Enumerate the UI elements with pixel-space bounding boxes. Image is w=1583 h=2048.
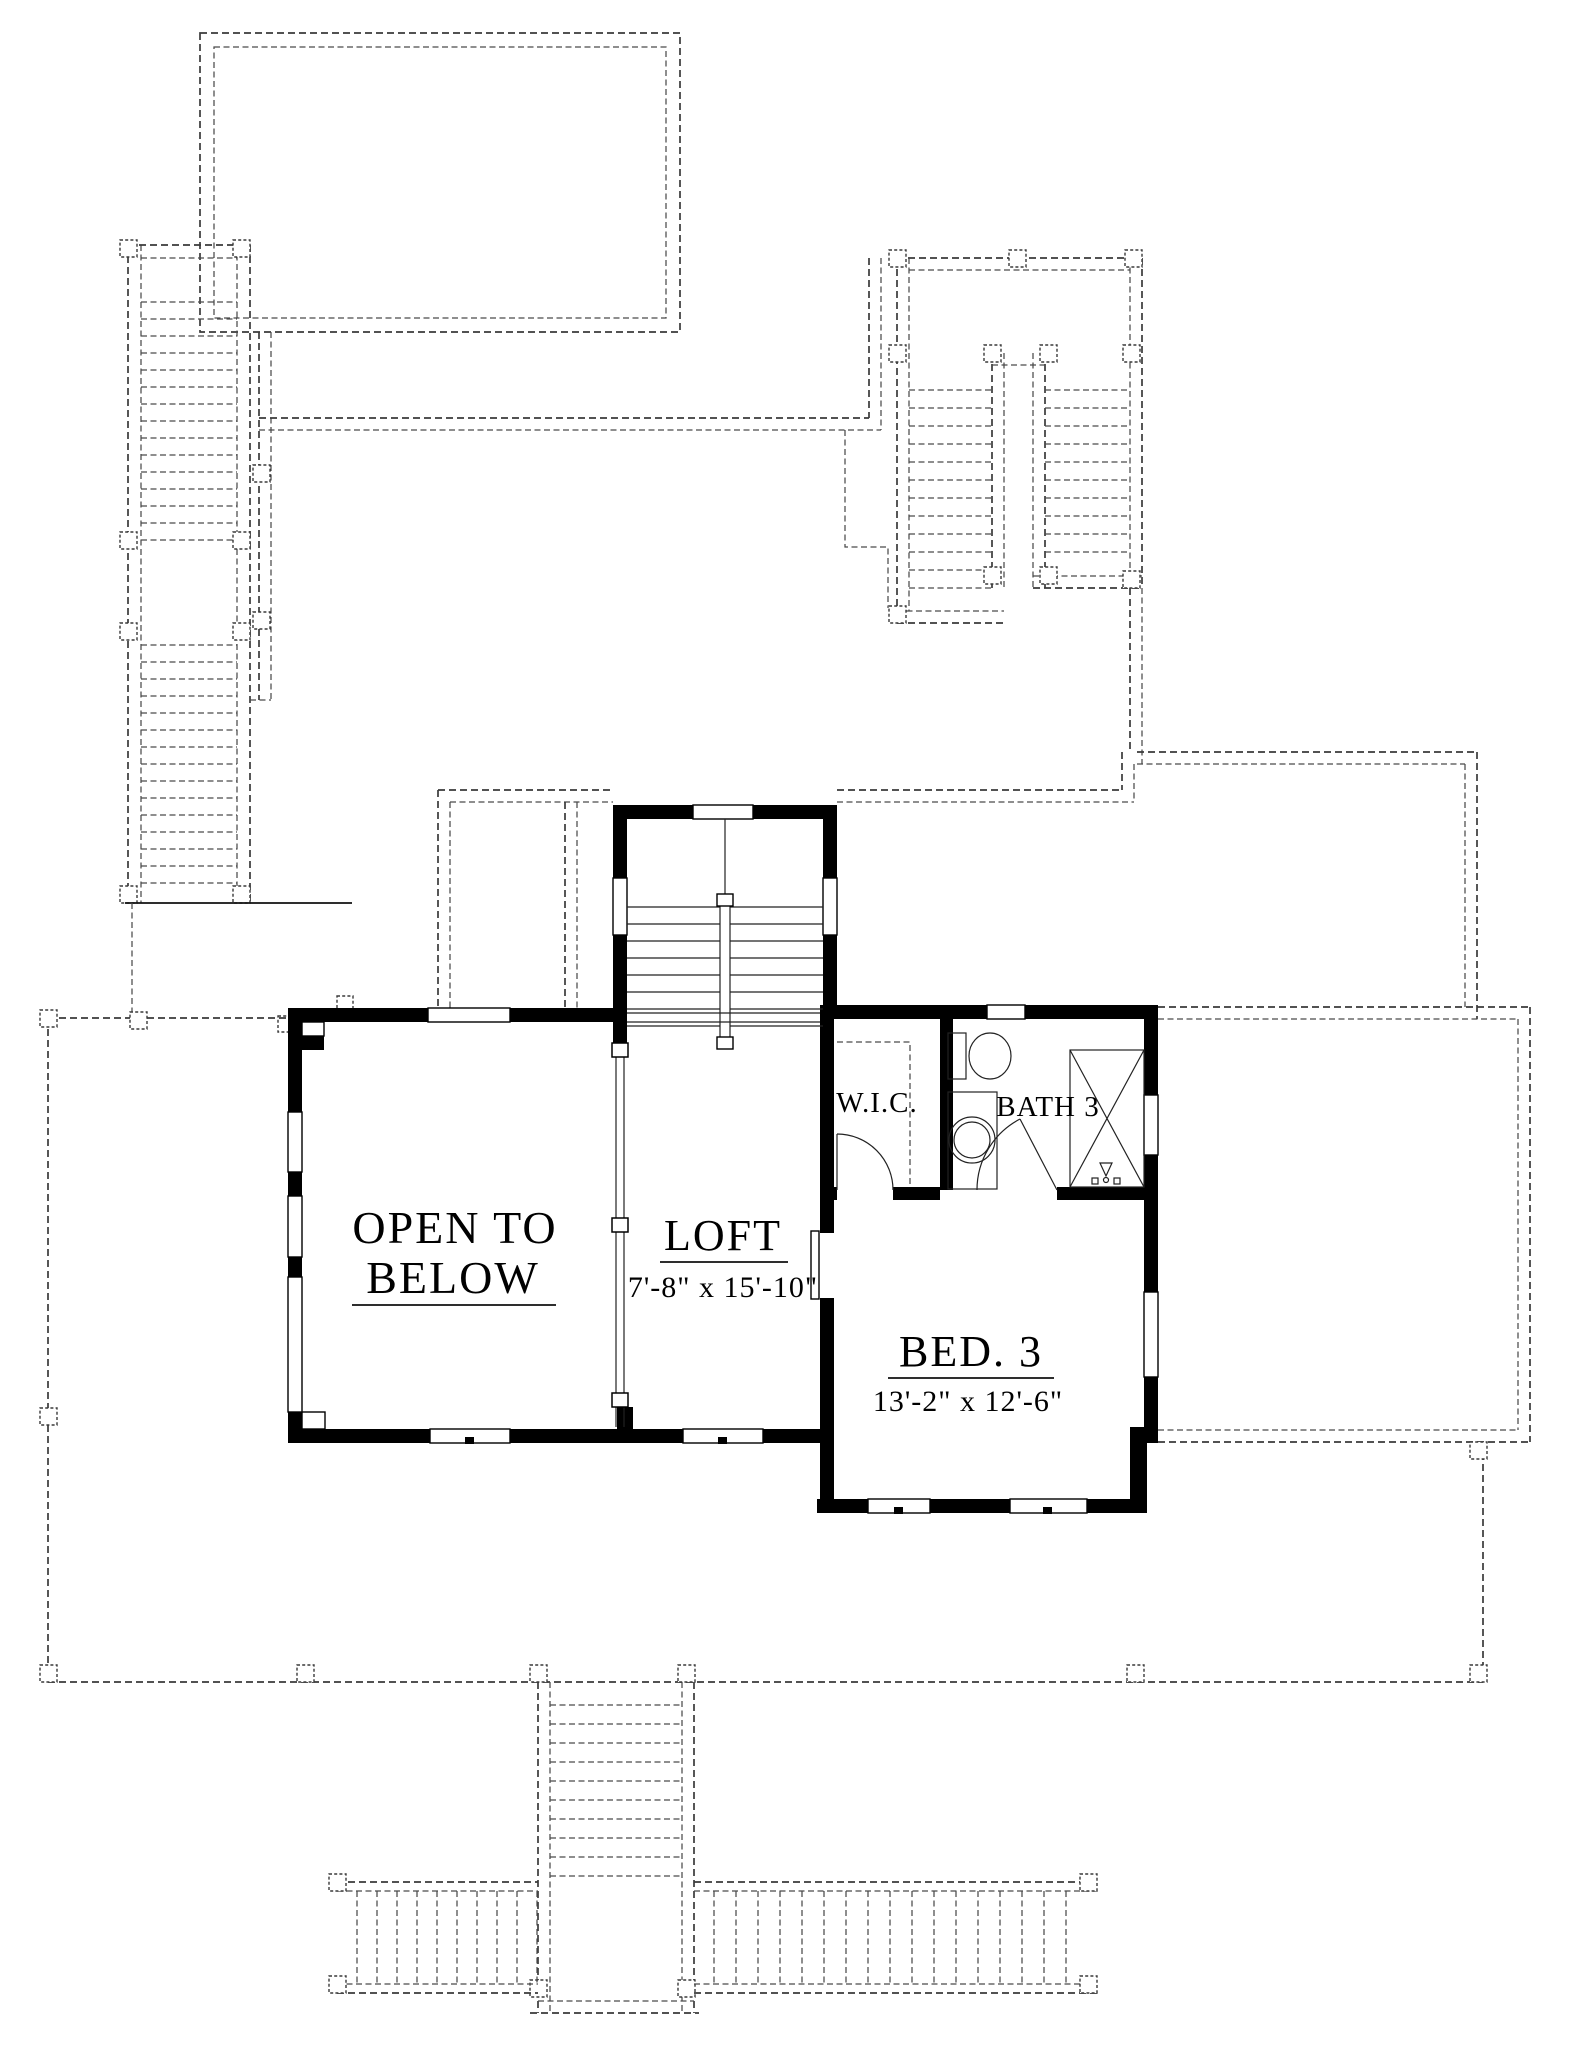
loft-railing — [612, 1043, 628, 1427]
railing-post-bottom — [612, 1393, 628, 1407]
newel-cap-top — [717, 894, 733, 906]
first-floor-outline-dashed — [250, 258, 888, 700]
porch-roof-edge-dashed — [278, 790, 1134, 1032]
shower-head-icon — [1100, 1163, 1112, 1176]
railing-post-top — [612, 1043, 628, 1057]
loft-label: LOFT — [664, 1211, 782, 1260]
exterior-stair-left — [120, 240, 352, 1018]
loft-dimensions: 7'-8" x 15'-10" — [628, 1271, 818, 1304]
stair-posts — [120, 240, 250, 903]
corner-notch-top — [302, 1022, 324, 1036]
bed3-label: BED. 3 — [899, 1327, 1043, 1376]
floor-plan-page: OPEN TO BELOW LOFT 7'-8" x 15'-10" W.I.C… — [0, 0, 1583, 2048]
window-bath-top — [987, 1005, 1025, 1019]
stairwell-treads-left — [627, 907, 720, 1026]
wic-label: W.I.C. — [836, 1087, 917, 1119]
deck-stair-right-flight — [1045, 390, 1130, 552]
left-railing-balusters — [357, 1891, 537, 1984]
corner-notch-bottom — [302, 1412, 325, 1429]
window-open-top — [428, 1008, 510, 1022]
newel-cap-bottom — [717, 1037, 733, 1049]
bottom-stair-treads — [550, 1705, 682, 1876]
stair-treads-upper-run — [141, 302, 237, 540]
bath3-label: BATH 3 — [996, 1091, 1099, 1123]
window-bed-right — [1144, 1292, 1158, 1377]
porch-outline — [40, 1010, 1487, 1682]
stairwell-treads-right — [730, 907, 823, 1026]
toilet — [948, 1033, 1011, 1079]
window-open-left-2 — [288, 1196, 302, 1257]
vanity-sink — [948, 1092, 997, 1189]
deck-stair-left-flight — [909, 390, 992, 588]
labels: OPEN TO BELOW LOFT 7'-8" x 15'-10" W.I.C… — [352, 1087, 1100, 1418]
deck-posts — [889, 250, 1142, 623]
wall-notches — [302, 1022, 325, 1429]
left-railing-posts — [329, 1874, 346, 1993]
right-railing-posts — [1080, 1874, 1097, 1993]
wic-door-arc — [837, 1134, 893, 1190]
window-open-left-1 — [288, 1112, 302, 1172]
deck-railing-left — [329, 1874, 538, 1993]
open-to-below-label-line1: OPEN TO — [352, 1202, 557, 1253]
outline-posts — [253, 465, 270, 629]
open-to-below-label-line2: BELOW — [366, 1252, 540, 1303]
stairwell-interior — [627, 819, 823, 1049]
window-bath-right — [1144, 1095, 1158, 1155]
window-stairwell-top — [693, 805, 753, 819]
window-stairwell-left — [613, 878, 627, 935]
window-open-left-3 — [288, 1277, 302, 1412]
deck-railing-right — [694, 1874, 1097, 1993]
bed3-dimensions: 13'-2" x 12'-6" — [873, 1385, 1063, 1418]
deck-upper-right — [889, 250, 1142, 764]
roof-outline-right-lower — [1158, 1007, 1530, 1442]
roof-outline-upper-left — [200, 33, 680, 332]
porch-posts — [40, 1010, 1487, 1682]
roof-outline-right-upper — [1122, 752, 1477, 1019]
railing-post-mid — [612, 1218, 628, 1232]
floor-plan-drawing: OPEN TO BELOW LOFT 7'-8" x 15'-10" W.I.C… — [0, 0, 1583, 2048]
porch-stair-bottom — [530, 1665, 699, 2013]
window-stairwell-right — [823, 878, 837, 935]
bath-door-leaf — [1020, 1119, 1057, 1190]
right-railing-balusters — [714, 1891, 1066, 1984]
bottom-stair-posts — [530, 1665, 695, 1997]
stair-treads-lower-run — [141, 645, 237, 883]
bath-door — [977, 1119, 1057, 1190]
